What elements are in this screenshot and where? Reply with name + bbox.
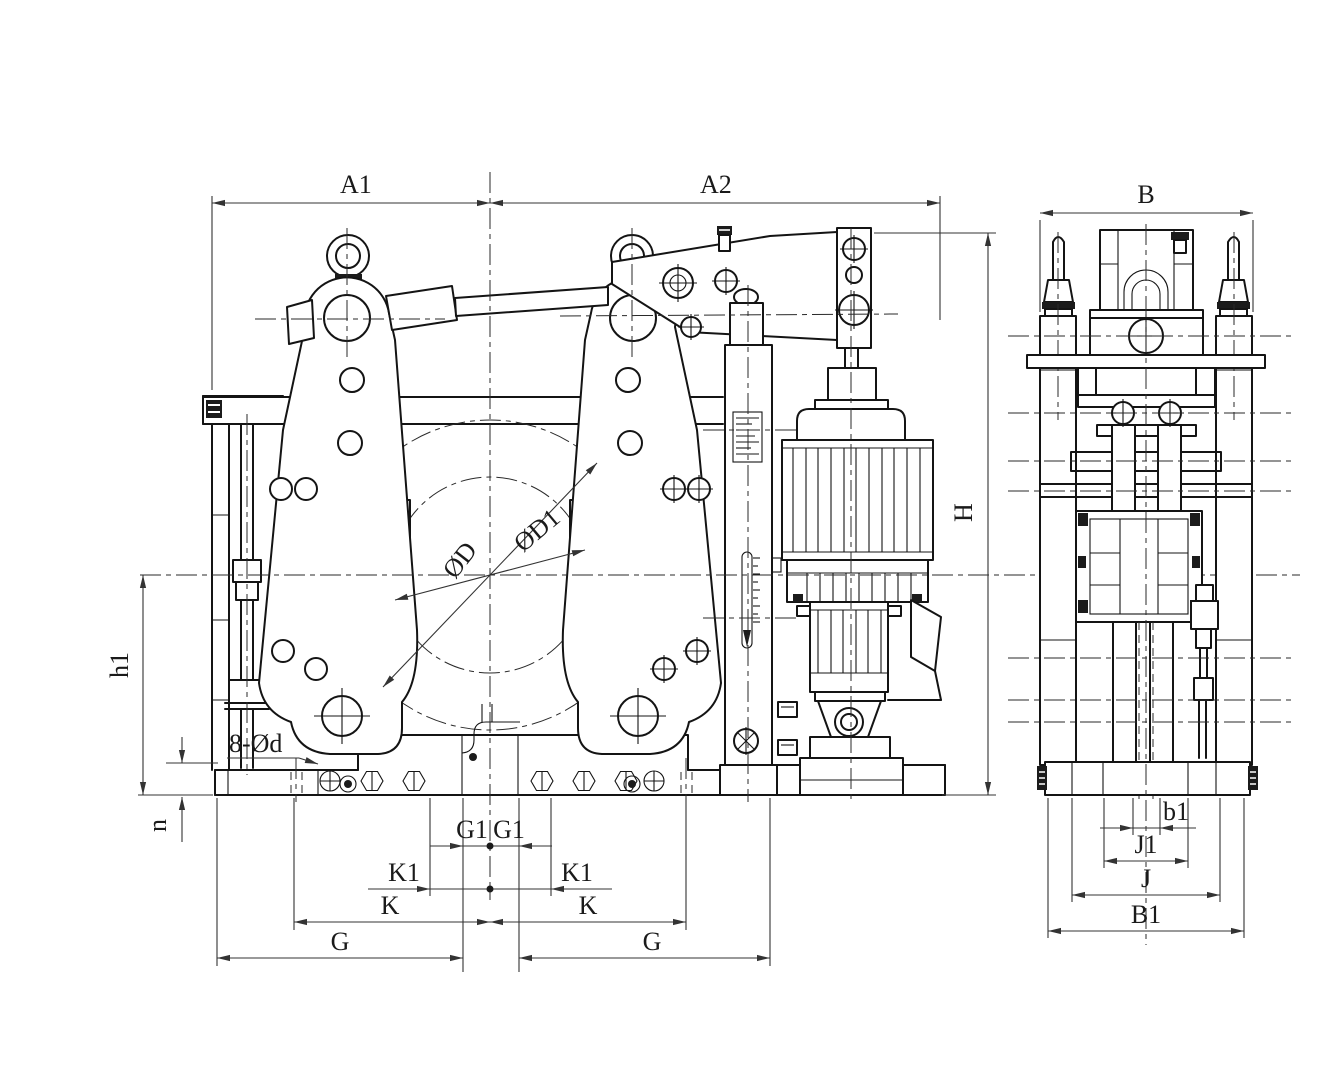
- dim-label-k-right: K: [579, 891, 598, 920]
- drawing-page: ØD ØD1: [0, 0, 1335, 1091]
- dim-label-h: H: [949, 503, 978, 522]
- dim-label-k1-right: K1: [561, 858, 593, 887]
- dim-label-j1: J1: [1134, 830, 1157, 859]
- base-hex-bolts: [320, 771, 664, 791]
- side-spring-block: [1076, 511, 1202, 622]
- dim-label-k-left: K: [381, 891, 400, 920]
- dim-label-j: J: [1141, 864, 1151, 893]
- dim-label-b1: b1: [1163, 797, 1189, 826]
- left-brake-arm: [259, 277, 417, 792]
- dim-label-g-right: G: [643, 927, 662, 956]
- dim-label-n: n: [143, 819, 172, 832]
- side-adjuster-screw: [1191, 585, 1218, 758]
- release-rod-column: [720, 285, 781, 802]
- dim-label-b: B: [1137, 180, 1154, 209]
- dim-label-b1-outer: B1: [1131, 900, 1161, 929]
- dim-label-mount-holes: 8-Ød: [229, 729, 282, 758]
- right-brake-arm: [563, 277, 721, 792]
- dim-label-g1-left: G1: [456, 815, 488, 844]
- left-eyebolt: [327, 235, 369, 283]
- dim-label-a2: A2: [700, 170, 732, 199]
- dim-label-drum-d: ØD: [437, 536, 483, 583]
- dim-label-k1-left: K1: [388, 858, 420, 887]
- side-base: [1037, 762, 1258, 795]
- dim-label-h1: h1: [105, 652, 134, 678]
- drum-bottom-bracket: [462, 704, 520, 761]
- dim-label-g1-right: G1: [493, 815, 525, 844]
- dim-label-a1: A1: [340, 170, 372, 199]
- brake-technical-drawing: ØD ØD1: [0, 0, 1335, 1091]
- dim-label-g-left: G: [331, 927, 350, 956]
- side-view: B b1 J1 J B1: [1008, 180, 1295, 945]
- dim-label-drum-d1: ØD1: [508, 503, 565, 558]
